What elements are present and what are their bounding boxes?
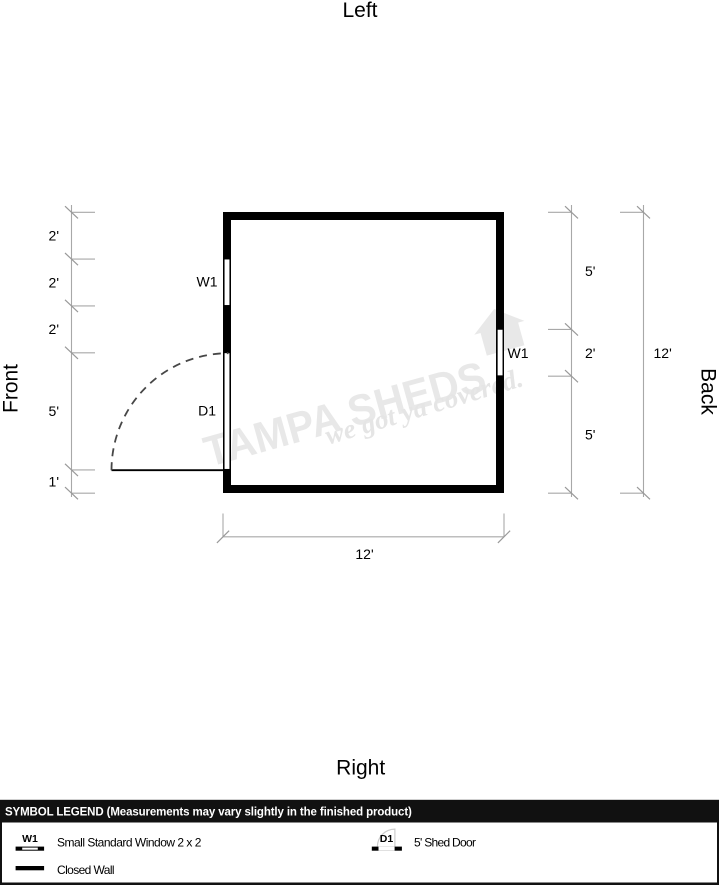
svg-text:Back: Back bbox=[697, 368, 719, 415]
svg-text:5': 5' bbox=[585, 263, 595, 279]
svg-text:W1: W1 bbox=[22, 833, 38, 845]
svg-text:Right: Right bbox=[336, 757, 385, 780]
svg-text:W1: W1 bbox=[508, 345, 529, 361]
svg-text:12': 12' bbox=[654, 345, 672, 361]
svg-text:D1: D1 bbox=[198, 403, 216, 419]
svg-text:Left: Left bbox=[342, 0, 377, 22]
svg-text:1': 1' bbox=[49, 473, 59, 489]
svg-text:SYMBOL LEGEND (Measurements ma: SYMBOL LEGEND (Measurements may vary sli… bbox=[5, 807, 412, 819]
svg-text:Front: Front bbox=[0, 364, 23, 413]
svg-text:2': 2' bbox=[49, 321, 59, 337]
svg-text:Closed Wall: Closed Wall bbox=[57, 863, 114, 877]
svg-text:2': 2' bbox=[585, 345, 595, 361]
svg-text:D1: D1 bbox=[380, 833, 394, 845]
svg-text:12': 12' bbox=[355, 546, 373, 562]
svg-text:Small Standard Window 2 x 2: Small Standard Window 2 x 2 bbox=[57, 835, 202, 849]
svg-text:5': 5' bbox=[585, 427, 595, 443]
svg-text:2': 2' bbox=[49, 228, 59, 244]
svg-text:2': 2' bbox=[49, 274, 59, 290]
svg-text:5' Shed Door: 5' Shed Door bbox=[414, 835, 476, 849]
svg-text:5': 5' bbox=[49, 403, 59, 419]
svg-text:W1: W1 bbox=[197, 273, 218, 289]
